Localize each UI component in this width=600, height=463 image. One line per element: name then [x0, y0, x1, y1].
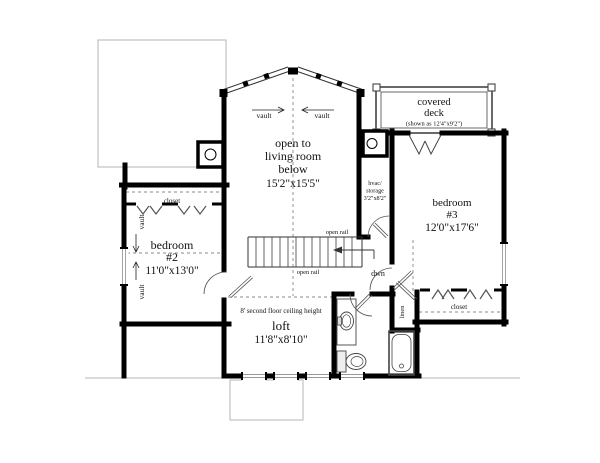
french-doors-deck: [409, 135, 441, 154]
toilet-icon: [337, 351, 366, 372]
door-bath: [350, 293, 372, 316]
living-room-label-3: below: [278, 162, 308, 176]
labels: open to living room below 15'2"x15'5" co…: [137, 97, 479, 346]
down-label: dwn: [371, 269, 385, 278]
closet-label-bedroom3: closet: [451, 303, 467, 311]
vault-arrow-bedroom2-lower: [133, 262, 139, 280]
stair-direction-arrow: [333, 247, 342, 254]
chimney-right: [363, 131, 387, 156]
closet-hangers: [137, 206, 492, 299]
open-rail-bottom-label: open rail: [297, 269, 320, 276]
staircase: [248, 237, 374, 267]
floor-plan-page: open to living room below 15'2"x15'5" co…: [0, 0, 600, 463]
vault-label-living-right: vault: [315, 111, 331, 120]
closet-label-bedroom2: closet: [164, 197, 180, 205]
linen-label: linen: [399, 305, 406, 319]
windows-loft-south: [242, 372, 330, 381]
vault-label-bedroom2-lower: vault: [137, 284, 146, 300]
window-bedroom2: [120, 248, 129, 285]
bedroom3-label-1: bedroom: [432, 197, 472, 209]
chimney-left: [198, 142, 223, 167]
door-linen: [396, 281, 417, 301]
floor-plan-drawing: open to living room below 15'2"x15'5" co…: [0, 0, 600, 463]
window-bedroom3: [500, 243, 509, 285]
vault-arrow-bedroom2-upper: [133, 234, 139, 252]
loft-dimensions: 11'8"x8'10": [254, 334, 307, 346]
deck-note: (shown as 12'4"x9'2"): [406, 121, 462, 128]
vault-label-bedroom2-upper: vault: [137, 214, 146, 230]
living-room-label-2: living room: [265, 149, 322, 163]
hvac-dimensions: 3'2"x8'2": [364, 195, 387, 202]
bedroom3-label-2: #3: [447, 209, 459, 221]
window-bath-south: [340, 372, 364, 381]
bedroom2-dimensions: 11'0"x13'0": [145, 265, 198, 277]
bathtub-icon: [389, 331, 414, 375]
deck-label-1: covered: [417, 97, 451, 108]
deck-label-2: deck: [424, 108, 445, 119]
living-room-dimensions: 15'2"x15'5": [266, 178, 320, 190]
hvac-label-2: storage: [366, 188, 384, 195]
loft-label: loft: [272, 318, 290, 333]
door-hvac: [368, 216, 389, 238]
bedroom3-dimensions: 12'0"x17'6": [425, 222, 479, 234]
hvac-label-1: hvac/: [368, 180, 382, 187]
walls: [122, 95, 507, 376]
living-room-label-1: open to: [275, 136, 311, 150]
open-rail-top-label: open rail: [326, 229, 349, 236]
door-bedroom2: [204, 272, 253, 298]
loft-ceiling-note: 8' second floor ceiling height: [240, 307, 321, 315]
vault-label-living-left: vault: [257, 111, 273, 120]
bedroom2-label-2: #2: [166, 250, 178, 264]
doors: [204, 216, 417, 316]
dormer-outline: [230, 380, 303, 420]
